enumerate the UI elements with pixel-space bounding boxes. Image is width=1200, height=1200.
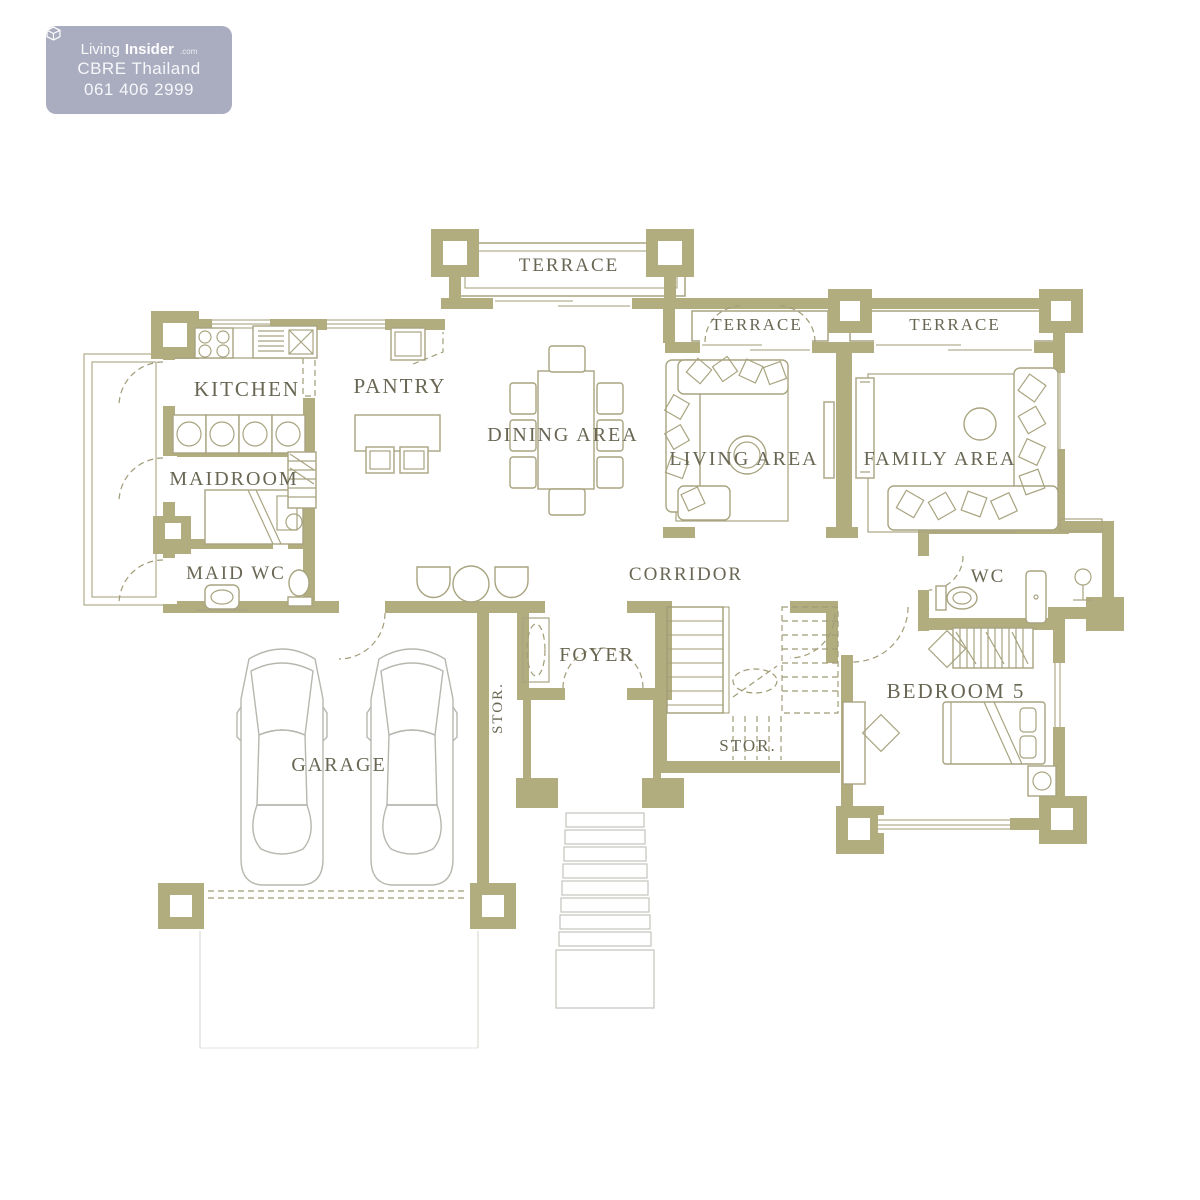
label-stor-stairs: STOR. [719, 736, 776, 755]
entry-steps [556, 813, 654, 1008]
laundry-machines [173, 415, 305, 453]
floorplan-drawing: TERRACE TERRACE TERRACE KITCHEN PANTRY D… [0, 0, 1200, 1200]
label-terrace-top: TERRACE [519, 255, 620, 276]
ottoman [863, 715, 900, 752]
side-table [964, 408, 996, 440]
toilet-icon [936, 586, 977, 610]
basin-icon [495, 567, 528, 598]
label-kitchen: KITCHEN [194, 377, 300, 401]
label-family: FAMILY AREA [864, 448, 1017, 470]
watermark-phone: 061 406 2999 [84, 80, 194, 100]
pantry-island [355, 415, 440, 473]
maidroom-furniture [205, 452, 316, 544]
floorplan-page: TERRACE TERRACE TERRACE KITCHEN PANTRY D… [0, 0, 1200, 1200]
label-stor-side: STOR. [490, 682, 506, 734]
kitchen-sink-icon [253, 326, 317, 358]
brand-living: Living [81, 41, 120, 58]
label-dining: DINING AREA [487, 424, 638, 446]
watermark-badge: LivingInsider.com CBRE Thailand 061 406 … [46, 26, 232, 114]
pantry-fixtures [355, 328, 443, 473]
basin-icon [417, 567, 450, 598]
label-bedroom5: BEDROOM 5 [887, 679, 1026, 703]
label-maid-wc: MAID WC [186, 563, 286, 584]
corridor-basins [417, 566, 528, 602]
bathtub-door [1026, 571, 1046, 623]
watermark-company: CBRE Thailand [77, 59, 200, 79]
label-pantry: PANTRY [354, 374, 447, 398]
bed [943, 702, 1045, 764]
shower-icon [1073, 569, 1093, 600]
tv-console-living [824, 402, 834, 478]
label-wc: WC [971, 566, 1006, 587]
label-garage: GARAGE [291, 754, 386, 776]
label-corridor: CORRIDOR [629, 564, 743, 585]
brand-line: LivingInsider.com [81, 41, 198, 58]
desk [843, 702, 865, 784]
livinginsider-logo-icon [46, 26, 61, 41]
label-maidroom: MAIDROOM [169, 468, 298, 490]
bedroom5-furniture [843, 628, 1056, 796]
stove-icon [195, 328, 233, 358]
label-terrace-living: TERRACE [711, 315, 802, 334]
fridge-icon [391, 328, 443, 364]
label-living: LIVING AREA [669, 448, 818, 470]
brand-tld: .com [180, 47, 197, 56]
label-foyer: FOYER [559, 644, 635, 666]
nightstand [1028, 766, 1056, 796]
label-terrace-family: TERRACE [909, 315, 1000, 334]
brand-insider: Insider [125, 41, 174, 58]
living-furniture [665, 356, 834, 521]
basin-round-icon [453, 566, 489, 602]
